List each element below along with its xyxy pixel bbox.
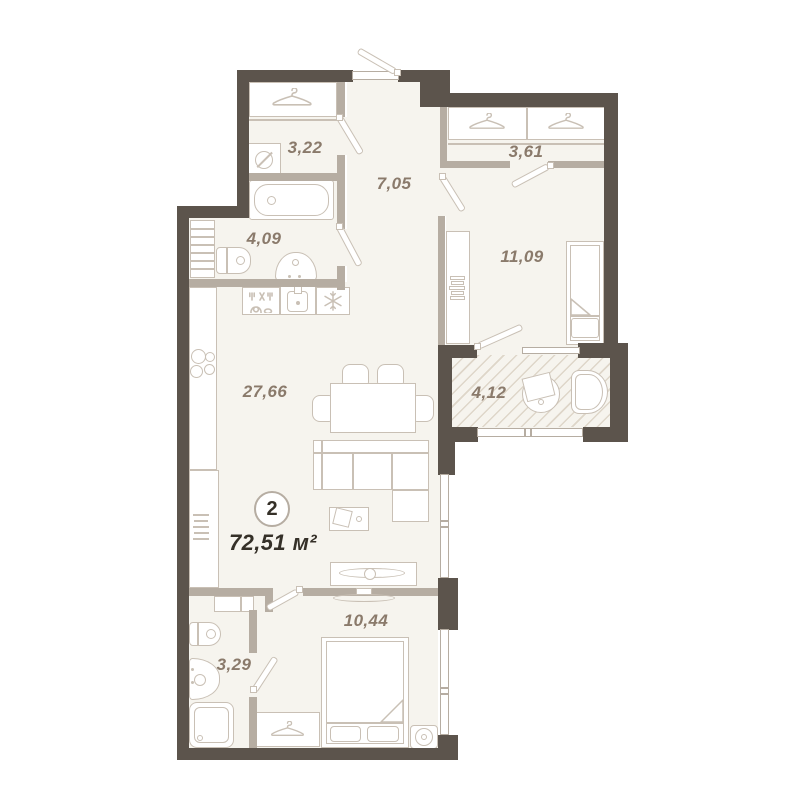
partition <box>337 80 345 117</box>
sofa-back-line <box>313 452 429 454</box>
total-area-label: 72,51 м² <box>229 530 317 556</box>
window-tick <box>440 687 449 689</box>
blanket-fold <box>569 297 593 318</box>
dining-chair <box>342 364 369 385</box>
room-label: 3,29 <box>217 655 252 675</box>
book <box>450 276 465 280</box>
shelf-line <box>190 268 215 270</box>
door-hinge <box>336 114 343 121</box>
bathtub-inner <box>254 184 329 216</box>
dining-chair <box>414 395 434 422</box>
shelf-line <box>190 228 215 230</box>
shower-drain <box>197 735 203 741</box>
toilet-tank-line <box>226 248 228 273</box>
room-label: 7,05 <box>377 174 412 194</box>
dining-chair <box>377 364 404 385</box>
door-hinge <box>336 223 343 230</box>
hanger-icon <box>270 88 314 109</box>
stove-burner <box>205 352 215 362</box>
partition <box>440 107 447 168</box>
wardrobe-rail-line <box>249 119 337 121</box>
room-label: 3,61 <box>509 142 544 162</box>
window-tick <box>440 693 449 695</box>
wall <box>604 93 618 347</box>
armchair-inner <box>575 374 603 410</box>
bed-pillow <box>330 726 361 742</box>
hanger-icon <box>546 113 586 132</box>
door-hinge <box>439 173 446 180</box>
sink-dot <box>191 668 194 671</box>
partition <box>438 216 445 345</box>
cabinet-shelf-line <box>194 532 209 534</box>
wall <box>438 578 458 630</box>
bedroom-tv <box>333 594 395 602</box>
window-tick <box>530 428 532 437</box>
toilet <box>189 622 221 646</box>
cabinet-shelf-line <box>193 538 209 540</box>
sofa-divider <box>391 452 393 490</box>
room-label: 3,22 <box>288 138 323 158</box>
hanger-icon <box>269 721 306 739</box>
wall <box>237 70 353 82</box>
wall <box>420 70 450 107</box>
room-label: 27,66 <box>243 382 288 402</box>
sofa-chaise-line <box>392 489 429 491</box>
window-tick <box>440 526 449 528</box>
book <box>451 291 464 295</box>
shelf-line <box>190 236 215 238</box>
sink-drain <box>194 674 206 686</box>
room-label: 10,44 <box>344 611 389 631</box>
balcony-table-dot <box>538 399 544 405</box>
wall <box>438 438 455 475</box>
wall <box>448 93 618 107</box>
toilet-tank-line <box>197 623 199 645</box>
cabinet-shelf-line <box>194 520 208 522</box>
kitchen-counter <box>189 287 217 470</box>
partition <box>237 173 345 181</box>
wall <box>438 735 458 752</box>
floor-plan: 3,22 7,05 3,61 4,09 11,09 27,66 4,12 10,… <box>0 0 800 800</box>
window <box>440 629 449 735</box>
partition <box>189 279 345 287</box>
partition <box>189 588 273 596</box>
bath-cabinet-divider <box>240 596 242 612</box>
sink-dot <box>191 681 194 684</box>
door-hinge <box>547 162 554 169</box>
tv-stand <box>364 568 376 580</box>
blanket-fold <box>379 698 405 724</box>
toilet-flush <box>206 629 216 639</box>
partition <box>337 155 345 229</box>
door-hinge <box>250 686 257 693</box>
snowflake-fridge-icon <box>322 290 344 312</box>
window-tick <box>524 428 526 437</box>
cabinet-shelf-line <box>193 526 209 528</box>
dining-chair <box>312 395 332 422</box>
wall <box>583 427 628 442</box>
window-tick <box>440 520 449 522</box>
partition <box>249 697 257 750</box>
sink-faucet <box>292 259 299 266</box>
bathtub-drain <box>267 196 276 205</box>
pouf-circle-inner <box>421 734 427 740</box>
sofa-armrest-line <box>321 440 323 490</box>
shelf-line <box>190 252 215 254</box>
dining-table <box>330 383 416 433</box>
door-hinge <box>394 69 401 76</box>
shelf-line <box>190 260 215 262</box>
bed-pillow <box>367 726 399 742</box>
sink-dot <box>298 275 301 278</box>
book <box>451 281 464 285</box>
wall <box>438 345 452 432</box>
wall <box>237 70 249 218</box>
dishwasher-icon <box>247 290 276 313</box>
book <box>449 286 465 290</box>
kitchen-sink-dot <box>296 301 300 305</box>
balcony-sill-window <box>522 347 580 354</box>
wall <box>177 748 458 760</box>
sofa-chaise <box>392 452 429 522</box>
door-hinge <box>296 586 303 593</box>
room-label: 4,12 <box>472 383 507 403</box>
door-hinge <box>474 343 481 350</box>
shelf-line <box>190 244 215 246</box>
wall <box>177 206 189 760</box>
room-count-badge: 2 <box>254 491 290 527</box>
book <box>450 296 465 300</box>
room-label: 4,09 <box>247 229 282 249</box>
tall-cabinet <box>189 470 219 588</box>
bed-pillow <box>571 318 599 338</box>
room-label: 11,09 <box>500 247 543 267</box>
partition <box>249 610 257 653</box>
coffee-table-dot <box>356 516 362 522</box>
toilet <box>216 247 251 274</box>
partition <box>548 161 606 168</box>
sofa-divider <box>352 452 354 490</box>
bath-cabinet <box>214 596 254 612</box>
stove-burner <box>190 365 203 378</box>
hanger-icon <box>467 113 507 132</box>
stove-burner <box>204 364 215 375</box>
cabinet-shelf-line <box>193 514 209 516</box>
sink-dot <box>288 275 291 278</box>
toilet-flush <box>236 256 245 265</box>
partition <box>446 161 510 168</box>
stove-burner <box>191 349 206 364</box>
